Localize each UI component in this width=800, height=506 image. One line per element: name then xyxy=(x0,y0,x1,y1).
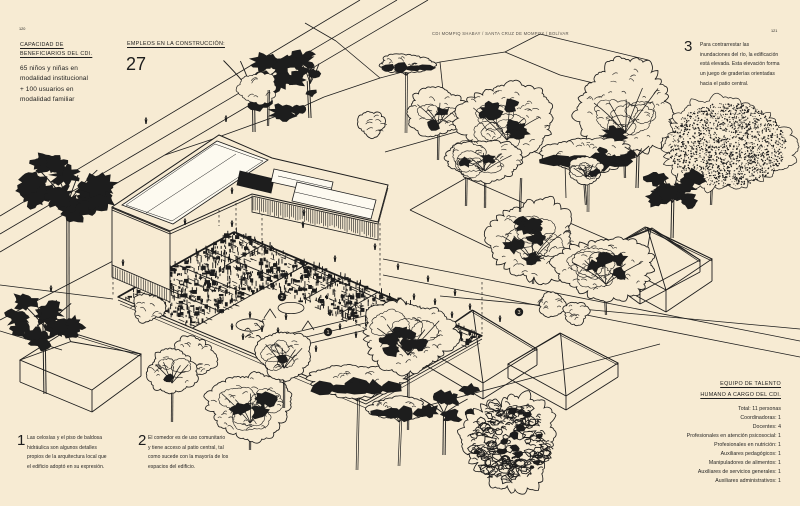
svg-text:1: 1 xyxy=(326,330,329,336)
svg-text:3: 3 xyxy=(517,310,520,316)
svg-text:2: 2 xyxy=(280,295,283,301)
